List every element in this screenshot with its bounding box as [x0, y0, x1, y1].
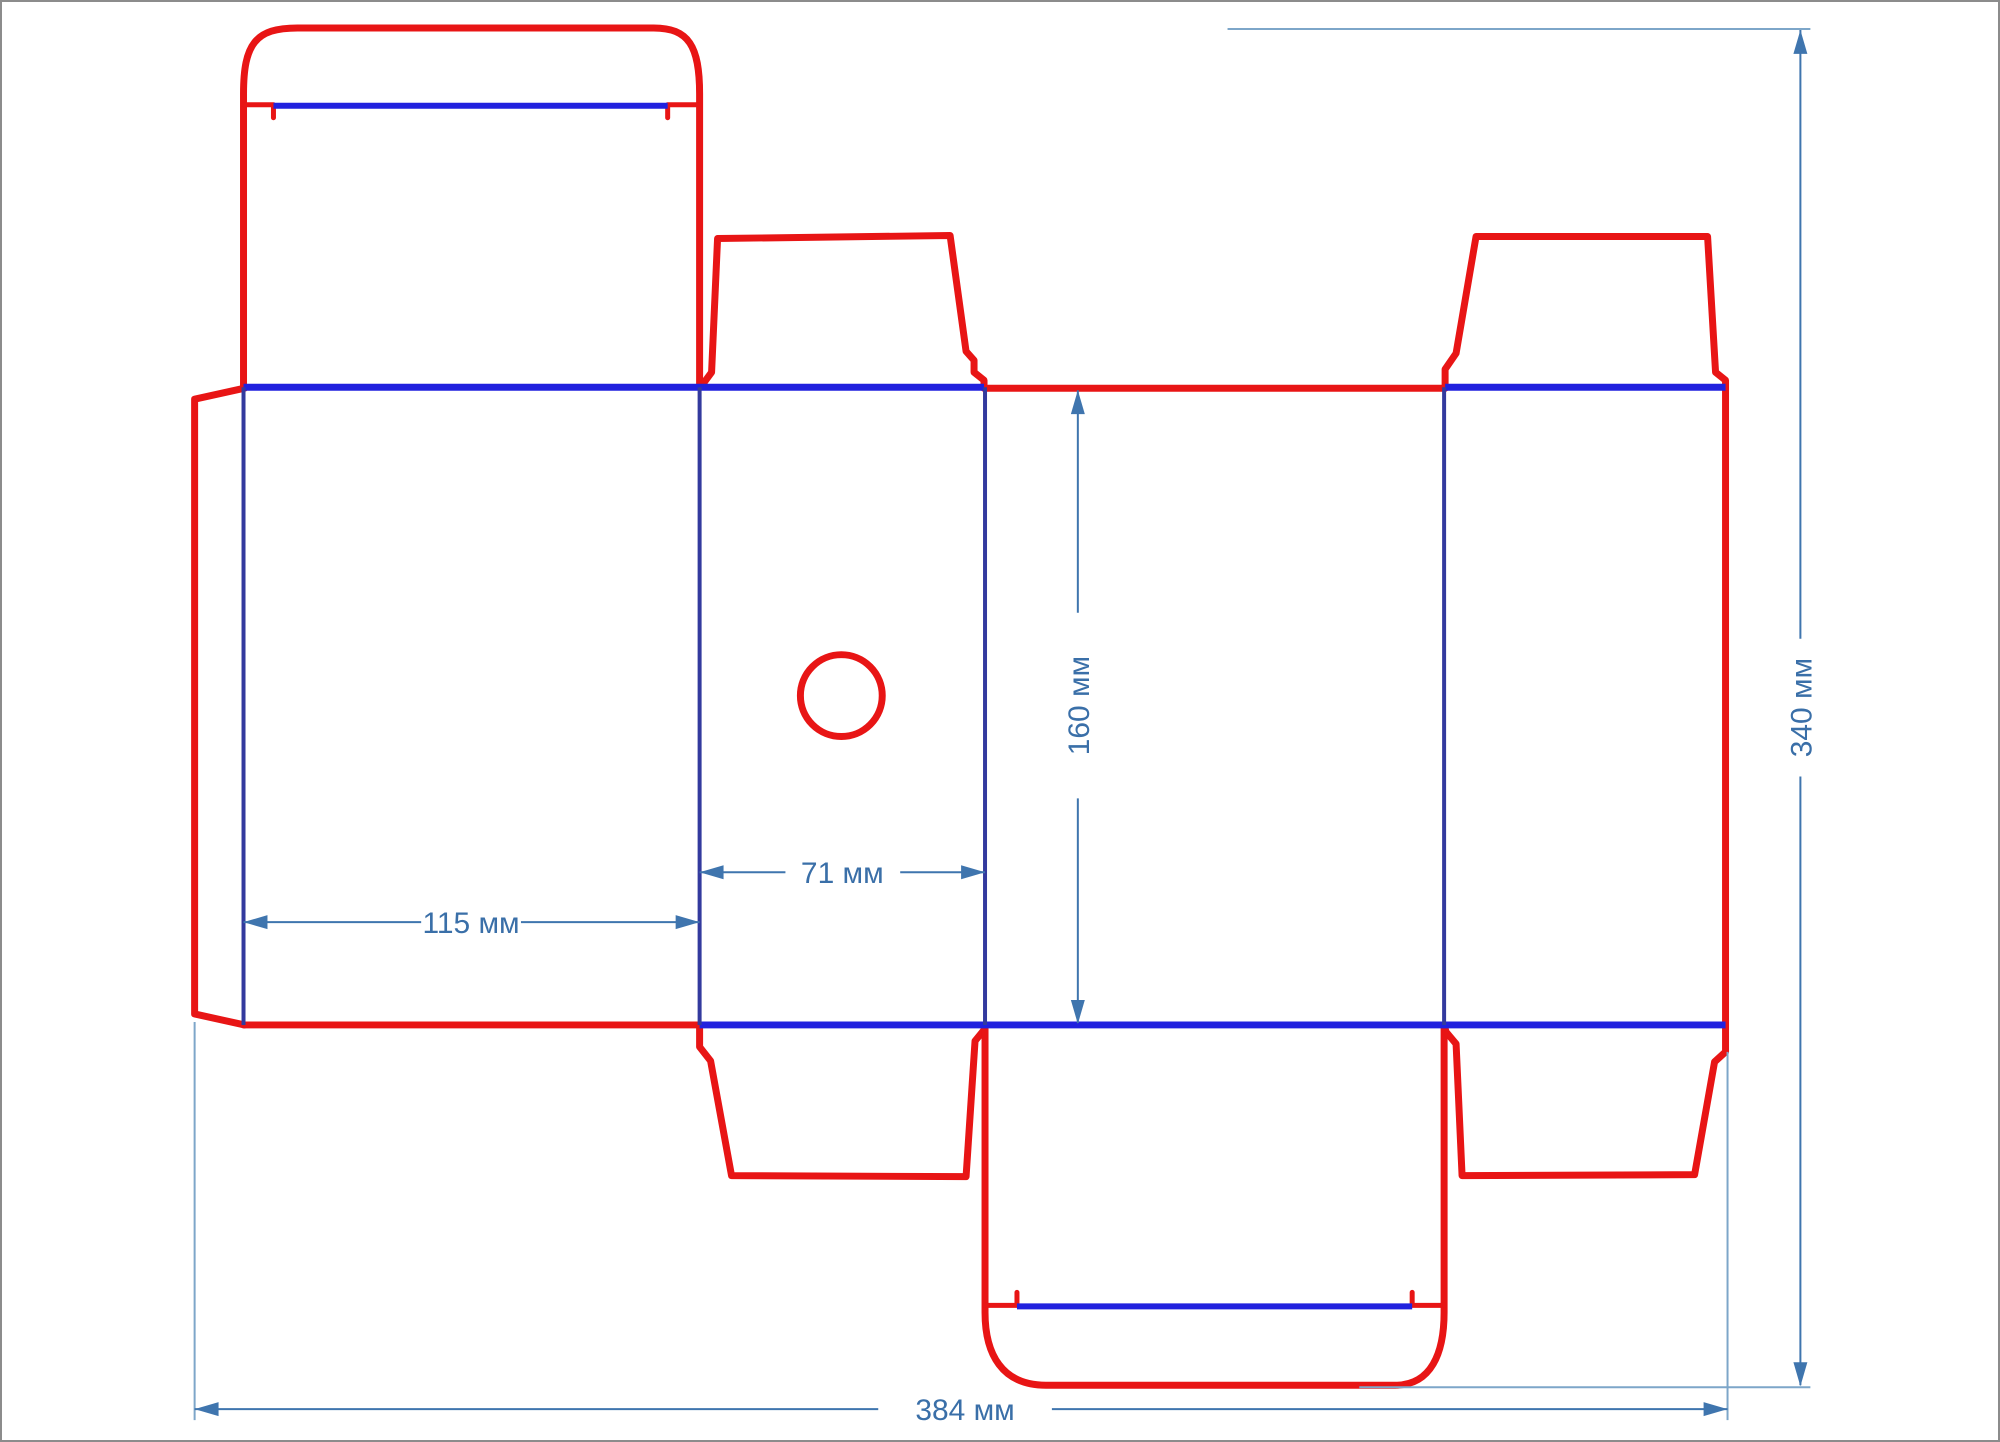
glue-flap-outline — [195, 388, 245, 1025]
thumb-hole-cutout — [800, 655, 882, 737]
side-width-label: 71 мм — [801, 857, 884, 890]
arrow-total-width-left — [195, 1402, 219, 1416]
arrow-total-width-right — [1704, 1402, 1728, 1416]
lid-flap-outline — [244, 28, 700, 387]
arrow-panel-height-top — [1071, 390, 1085, 414]
cut-lines — [195, 28, 1726, 1385]
arrow-front-width-right — [676, 915, 700, 929]
arrow-panel-height-bottom — [1071, 1000, 1085, 1024]
total-width-label: 384 мм — [915, 1394, 1014, 1427]
arrow-total-height-bottom — [1793, 1362, 1807, 1386]
total-height-label: 340 мм — [1785, 658, 1818, 757]
arrow-side-width-right — [961, 865, 985, 879]
bottom-dust-flap-side2 — [1444, 1025, 1725, 1176]
bottom-dust-flap-side1 — [700, 1025, 984, 1177]
top-dust-flap-side1 — [701, 236, 984, 389]
front-width-label: 115 мм — [422, 907, 519, 940]
arrow-total-height-top — [1793, 30, 1807, 54]
top-dust-flap-side2 — [1445, 237, 1725, 389]
arrow-front-width-left — [244, 915, 268, 929]
panel-height-label: 160 мм — [1063, 656, 1096, 755]
arrow-side-width-left — [700, 865, 724, 879]
dieline-drawing: 115 мм 71 мм 160 мм 340 мм 384 мм — [2, 2, 1998, 1440]
dieline-canvas: 115 мм 71 мм 160 мм 340 мм 384 мм — [0, 0, 2000, 1442]
dimension-labels: 115 мм 71 мм 160 мм 340 мм 384 мм — [422, 656, 1818, 1427]
bottom-lid-flap-outline — [985, 1025, 1444, 1385]
